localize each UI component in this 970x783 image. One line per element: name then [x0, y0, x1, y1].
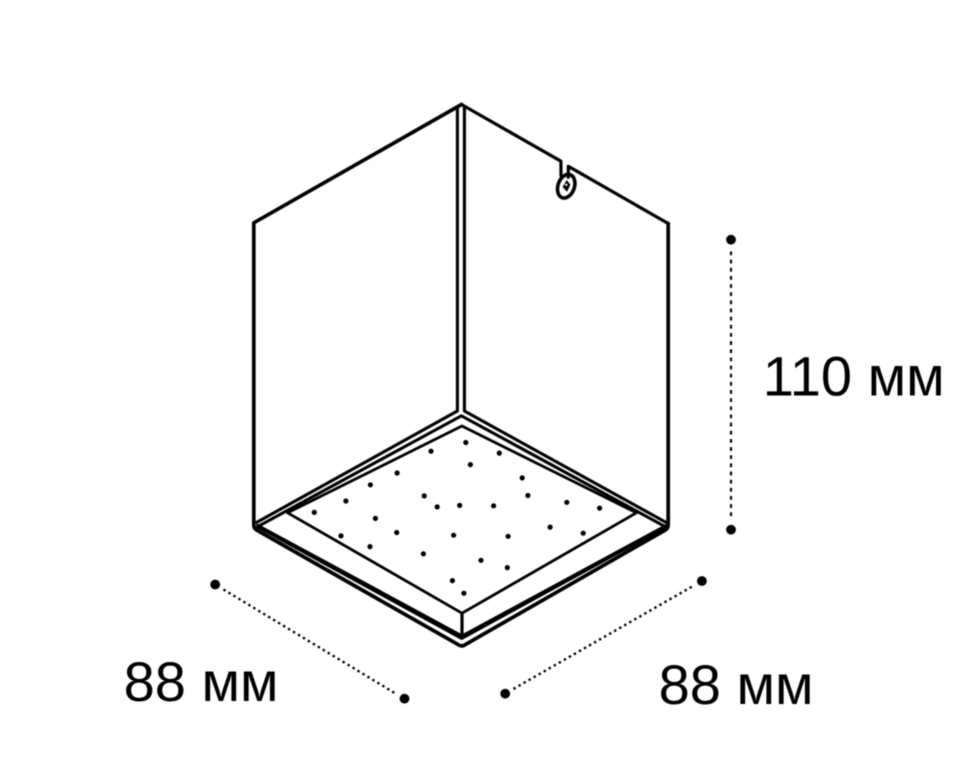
svg-text:110 мм: 110 мм: [763, 345, 945, 408]
svg-text:88 мм: 88 мм: [124, 650, 279, 713]
svg-text:88 мм: 88 мм: [659, 653, 814, 716]
